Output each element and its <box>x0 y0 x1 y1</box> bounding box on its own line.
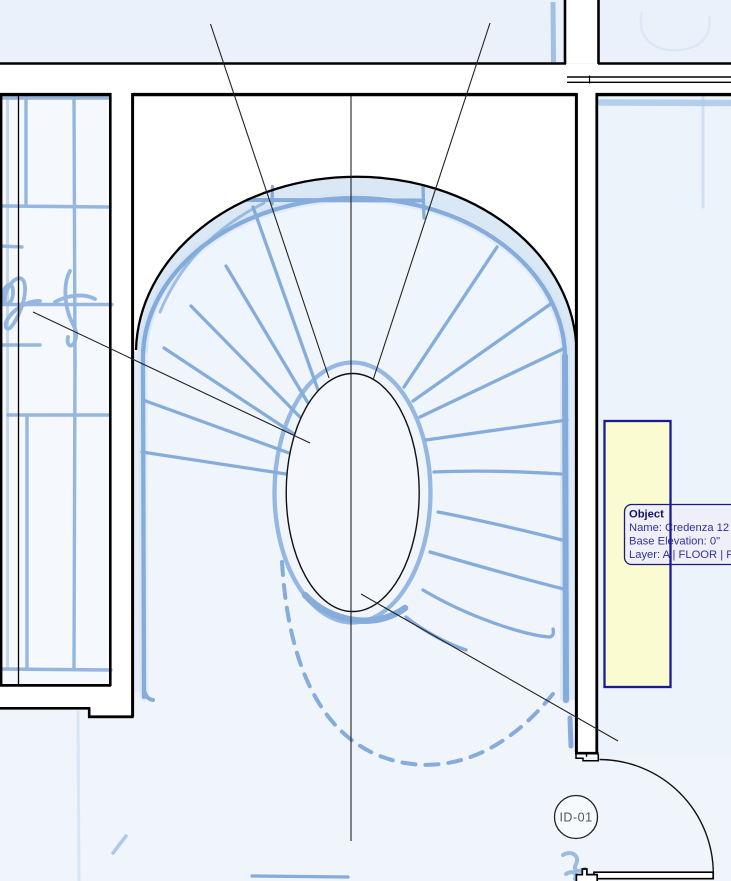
svg-text:Name: Credenza 12: Name: Credenza 12 <box>629 522 729 534</box>
svg-text:Base Elevation: 0": Base Elevation: 0" <box>629 535 720 547</box>
svg-text:Object: Object <box>629 509 664 521</box>
svg-text:Layer: A | FLOOR | FU: Layer: A | FLOOR | FU <box>629 549 731 561</box>
svg-text:ID-01: ID-01 <box>559 811 592 825</box>
